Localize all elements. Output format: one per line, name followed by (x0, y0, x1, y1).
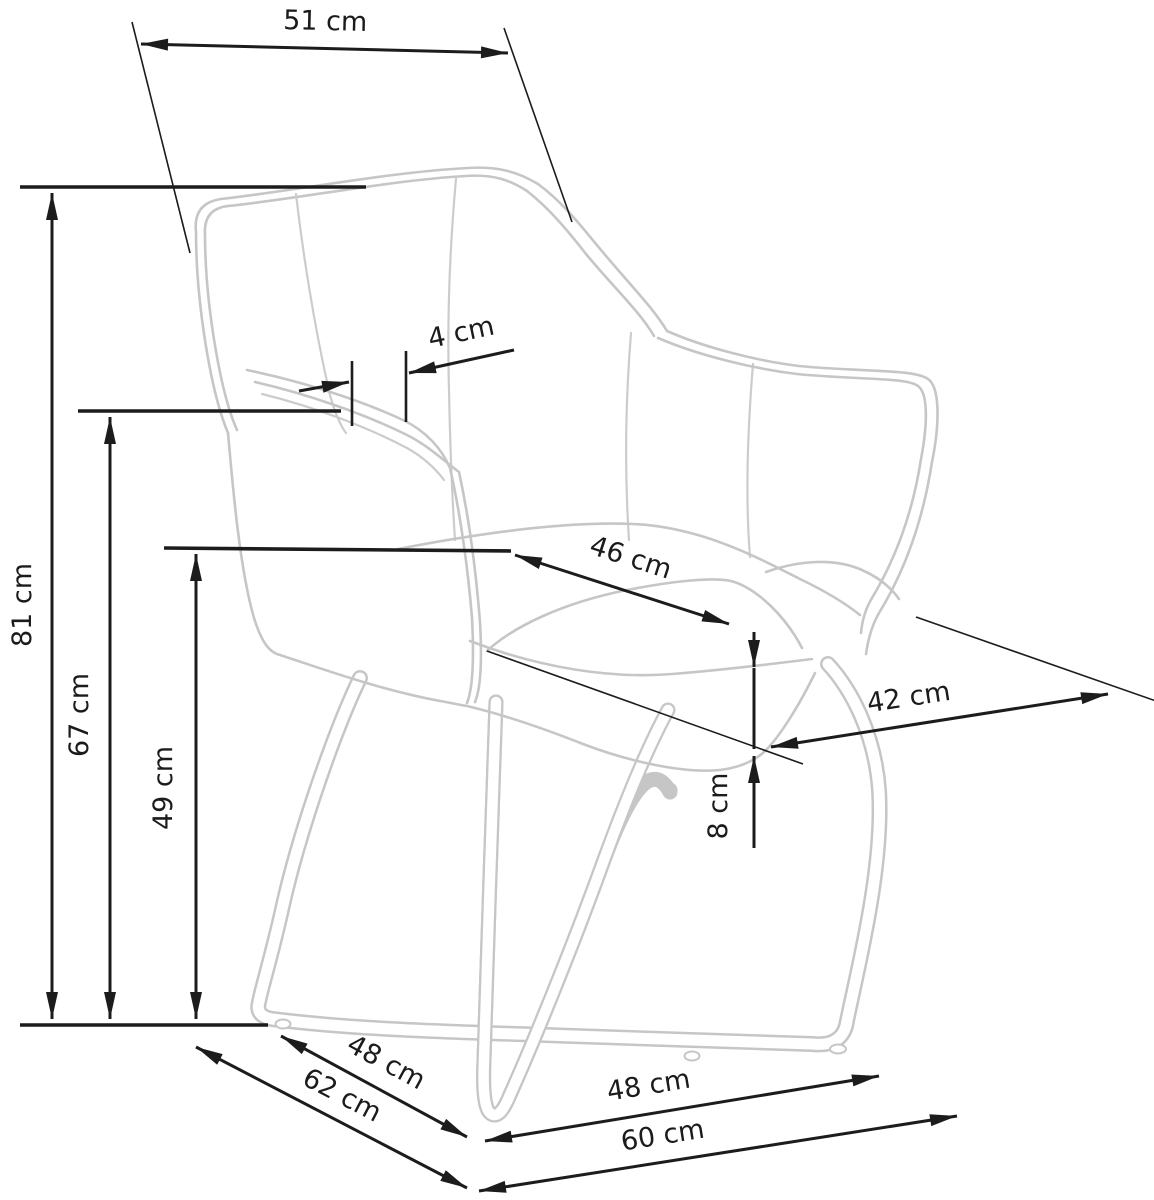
dim-label-42cm: 42 cm (865, 676, 953, 720)
dim-armrest-thickness: 4 cm (299, 311, 514, 426)
right-armrest (658, 331, 938, 654)
dim-label-51cm: 51 cm (283, 5, 368, 38)
left-armrest (228, 370, 815, 771)
dim-label-60cm: 60 cm (619, 1114, 707, 1158)
dim-seat-width: 46 cm (515, 530, 729, 624)
backrest (196, 168, 753, 557)
dim-base-width: 60 cm (479, 1114, 957, 1191)
dim-label-8cm: 8 cm (703, 773, 734, 840)
dim-label-46cm: 46 cm (586, 530, 676, 585)
foot-glide-rear-center (685, 1052, 700, 1061)
dim-seat-height: 49 cm (148, 548, 511, 1019)
dim-label-48cm-right: 48 cm (605, 1064, 693, 1108)
diagram-canvas: 51 cm 81 cm 67 cm 49 cm 4 cm 46 cm 42 cm (0, 0, 1154, 1200)
dim-label-67cm: 67 cm (64, 673, 95, 757)
dim-seat-depth: 42 cm (487, 617, 1154, 764)
foot-glide-rear-right (830, 1045, 846, 1054)
dim-label-4cm: 4 cm (425, 311, 497, 355)
dim-armrest-height: 67 cm (64, 411, 341, 1019)
foot-glide-front-left (276, 1020, 291, 1029)
dim-label-49cm: 49 cm (148, 746, 179, 830)
chair-dimension-diagram: 51 cm 81 cm 67 cm 49 cm 4 cm 46 cm 42 cm (0, 0, 1154, 1200)
chair-sketch (196, 168, 938, 1115)
dim-seat-thickness: 8 cm (703, 632, 754, 848)
dim-label-81cm: 81 cm (7, 563, 38, 647)
